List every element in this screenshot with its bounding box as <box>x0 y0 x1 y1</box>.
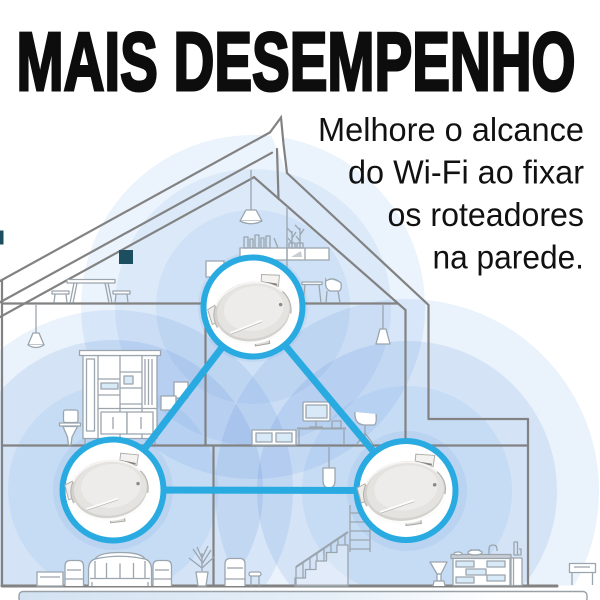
svg-text:do Wi-Fi ao fixar: do Wi-Fi ao fixar <box>348 154 584 191</box>
svg-text:Melhore o alcance: Melhore o alcance <box>318 111 584 148</box>
svg-text:os roteadores: os roteadores <box>388 196 585 233</box>
svg-text:na parede.: na parede. <box>433 239 585 276</box>
svg-text:MAIS DESEMPENHO: MAIS DESEMPENHO <box>17 17 576 109</box>
